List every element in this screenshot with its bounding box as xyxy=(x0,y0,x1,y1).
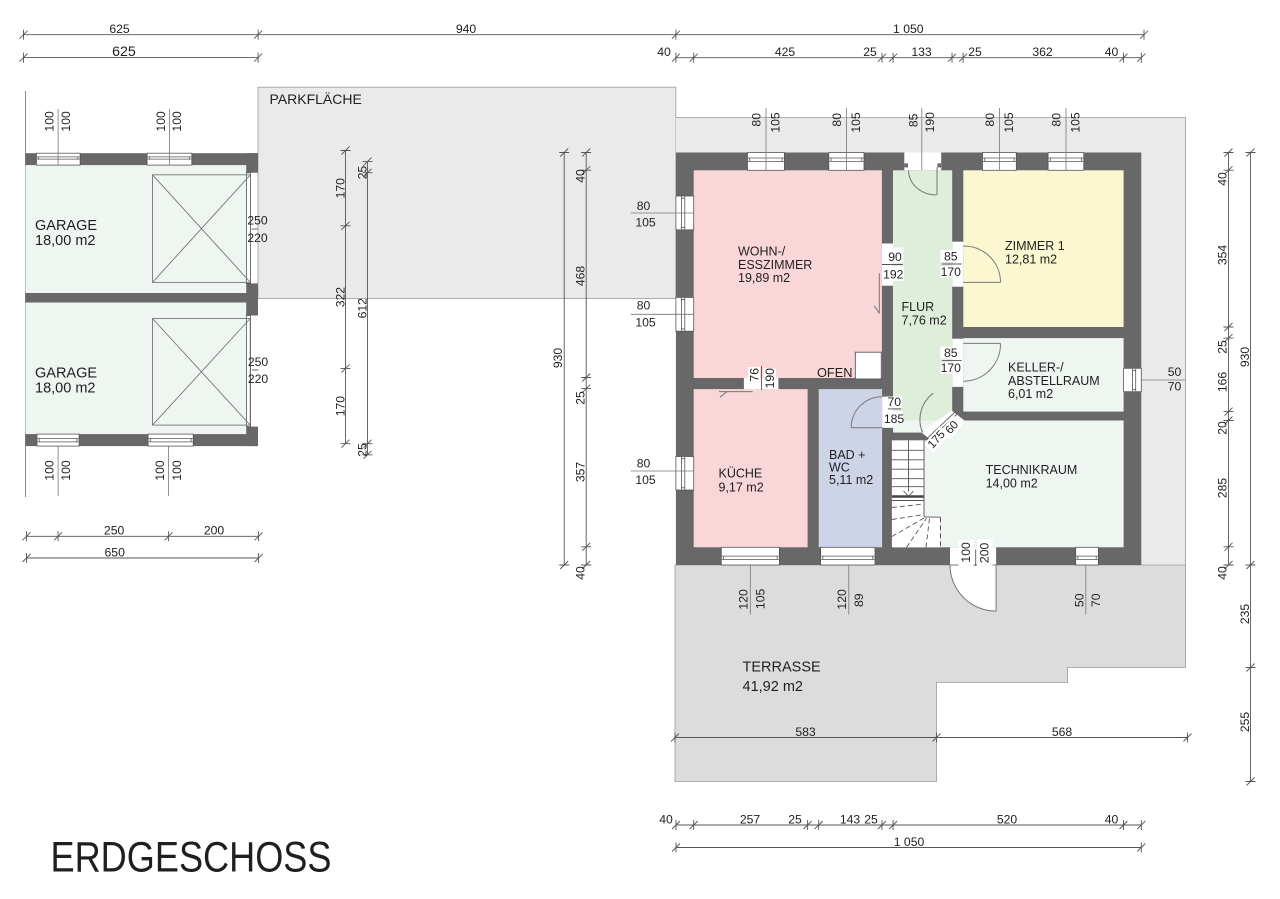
svg-text:40: 40 xyxy=(1105,813,1119,827)
svg-text:70: 70 xyxy=(888,395,902,409)
svg-text:192: 192 xyxy=(883,268,904,282)
svg-text:40: 40 xyxy=(1105,45,1119,59)
svg-text:357: 357 xyxy=(574,462,588,483)
svg-text:25: 25 xyxy=(864,813,878,827)
svg-text:250: 250 xyxy=(248,355,269,369)
svg-text:255: 255 xyxy=(1238,712,1252,733)
svg-text:100: 100 xyxy=(42,460,56,481)
svg-text:25: 25 xyxy=(863,45,877,59)
svg-text:TECHNIKRAUM: TECHNIKRAUM xyxy=(986,463,1078,477)
svg-text:76: 76 xyxy=(748,368,762,382)
svg-text:1 050: 1 050 xyxy=(894,835,925,849)
svg-text:40: 40 xyxy=(574,566,588,580)
svg-text:105: 105 xyxy=(1002,112,1016,133)
svg-text:285: 285 xyxy=(1216,478,1230,499)
svg-text:85: 85 xyxy=(944,346,958,360)
svg-text:FLUR: FLUR xyxy=(902,300,935,314)
svg-text:166: 166 xyxy=(1216,372,1230,393)
svg-text:650: 650 xyxy=(105,546,126,560)
svg-text:100: 100 xyxy=(170,111,184,132)
svg-text:940: 940 xyxy=(456,22,477,36)
svg-text:ERDGESCHOSS: ERDGESCHOSS xyxy=(51,834,332,882)
svg-text:50: 50 xyxy=(1168,365,1182,379)
svg-text:220: 220 xyxy=(248,372,269,386)
svg-text:80: 80 xyxy=(637,199,651,213)
svg-text:5,11 m2: 5,11 m2 xyxy=(829,473,873,487)
svg-text:9,17 m2: 9,17 m2 xyxy=(719,481,764,495)
svg-text:ESSZIMMER: ESSZIMMER xyxy=(738,258,812,272)
svg-text:612: 612 xyxy=(356,298,370,319)
svg-text:133: 133 xyxy=(911,45,932,59)
svg-text:583: 583 xyxy=(795,725,816,739)
svg-text:100: 100 xyxy=(153,460,167,481)
svg-text:100: 100 xyxy=(154,111,168,132)
svg-text:105: 105 xyxy=(635,316,656,330)
svg-text:80: 80 xyxy=(1050,113,1064,127)
svg-text:85: 85 xyxy=(944,249,958,263)
svg-text:250: 250 xyxy=(247,214,268,228)
svg-text:20: 20 xyxy=(1216,421,1230,435)
svg-text:930: 930 xyxy=(1238,347,1252,368)
svg-text:25: 25 xyxy=(356,166,370,180)
svg-text:170: 170 xyxy=(334,396,348,417)
svg-text:930: 930 xyxy=(551,348,565,369)
svg-text:120: 120 xyxy=(835,589,849,610)
svg-text:KELLER-/: KELLER-/ xyxy=(1008,361,1064,375)
svg-text:100: 100 xyxy=(42,111,56,132)
svg-text:40: 40 xyxy=(574,169,588,183)
svg-text:568: 568 xyxy=(1052,725,1073,739)
svg-text:250: 250 xyxy=(104,524,125,538)
svg-text:105: 105 xyxy=(1068,112,1082,133)
svg-text:143: 143 xyxy=(840,813,861,827)
svg-text:41,92 m2: 41,92 m2 xyxy=(743,679,803,695)
svg-text:105: 105 xyxy=(849,112,863,133)
svg-text:50: 50 xyxy=(1072,593,1086,607)
svg-text:200: 200 xyxy=(204,524,225,538)
svg-text:40: 40 xyxy=(659,813,673,827)
svg-text:WOHN-/: WOHN-/ xyxy=(738,245,786,259)
svg-text:6,01 m2: 6,01 m2 xyxy=(1008,387,1053,401)
svg-text:100: 100 xyxy=(59,111,73,132)
svg-text:80: 80 xyxy=(637,299,651,313)
svg-text:25: 25 xyxy=(356,443,370,457)
svg-text:200: 200 xyxy=(977,543,991,564)
svg-text:GARAGE: GARAGE xyxy=(35,366,97,382)
svg-text:105: 105 xyxy=(768,112,782,133)
svg-text:625: 625 xyxy=(112,44,136,60)
svg-text:25: 25 xyxy=(968,45,982,59)
svg-text:354: 354 xyxy=(1216,245,1230,266)
svg-text:185: 185 xyxy=(884,412,905,426)
svg-text:OFEN: OFEN xyxy=(817,365,853,380)
svg-text:GARAGE: GARAGE xyxy=(35,218,97,234)
svg-text:100: 100 xyxy=(170,460,184,481)
svg-text:12,81 m2: 12,81 m2 xyxy=(1005,252,1057,266)
svg-text:PARKFLÄCHE: PARKFLÄCHE xyxy=(270,91,362,107)
svg-text:190: 190 xyxy=(763,368,777,389)
svg-text:TERRASSE: TERRASSE xyxy=(743,660,821,676)
svg-text:18,00 m2: 18,00 m2 xyxy=(35,381,95,397)
svg-text:85: 85 xyxy=(907,113,921,127)
svg-text:170: 170 xyxy=(941,265,962,279)
svg-text:7,76 m2: 7,76 m2 xyxy=(902,314,947,328)
svg-text:18,00 m2: 18,00 m2 xyxy=(35,233,95,249)
svg-text:520: 520 xyxy=(997,813,1018,827)
svg-text:ABSTELLRAUM: ABSTELLRAUM xyxy=(1008,374,1100,388)
svg-text:19,89 m2: 19,89 m2 xyxy=(738,271,790,285)
svg-text:40: 40 xyxy=(1216,172,1230,186)
svg-text:170: 170 xyxy=(941,361,962,375)
svg-text:322: 322 xyxy=(334,287,348,308)
svg-text:170: 170 xyxy=(334,178,348,199)
svg-text:100: 100 xyxy=(959,542,973,563)
svg-text:235: 235 xyxy=(1238,604,1252,625)
svg-text:105: 105 xyxy=(635,473,656,487)
svg-text:70: 70 xyxy=(1168,380,1182,394)
svg-text:80: 80 xyxy=(830,113,844,127)
svg-text:80: 80 xyxy=(637,457,651,471)
svg-text:70: 70 xyxy=(1089,593,1103,607)
svg-text:40: 40 xyxy=(657,45,671,59)
svg-text:220: 220 xyxy=(247,231,268,245)
svg-text:80: 80 xyxy=(983,113,997,127)
svg-text:257: 257 xyxy=(740,813,761,827)
svg-text:89: 89 xyxy=(852,593,866,607)
svg-text:25: 25 xyxy=(1216,340,1230,354)
svg-text:105: 105 xyxy=(753,589,767,610)
svg-text:625: 625 xyxy=(109,22,130,36)
svg-text:ZIMMER 1: ZIMMER 1 xyxy=(1005,239,1065,253)
svg-text:14,00 m2: 14,00 m2 xyxy=(986,477,1038,491)
svg-text:362: 362 xyxy=(1032,45,1053,59)
svg-text:1 050: 1 050 xyxy=(893,22,924,36)
svg-text:468: 468 xyxy=(574,266,588,287)
svg-text:120: 120 xyxy=(737,589,751,610)
svg-text:90: 90 xyxy=(888,250,902,264)
svg-text:190: 190 xyxy=(923,112,937,133)
svg-text:40: 40 xyxy=(1216,566,1230,580)
svg-text:25: 25 xyxy=(574,391,588,405)
svg-text:100: 100 xyxy=(59,460,73,481)
svg-text:105: 105 xyxy=(635,216,656,230)
svg-text:25: 25 xyxy=(788,813,802,827)
svg-text:80: 80 xyxy=(750,113,764,127)
svg-text:425: 425 xyxy=(775,45,796,59)
svg-text:KÜCHE: KÜCHE xyxy=(719,467,763,481)
